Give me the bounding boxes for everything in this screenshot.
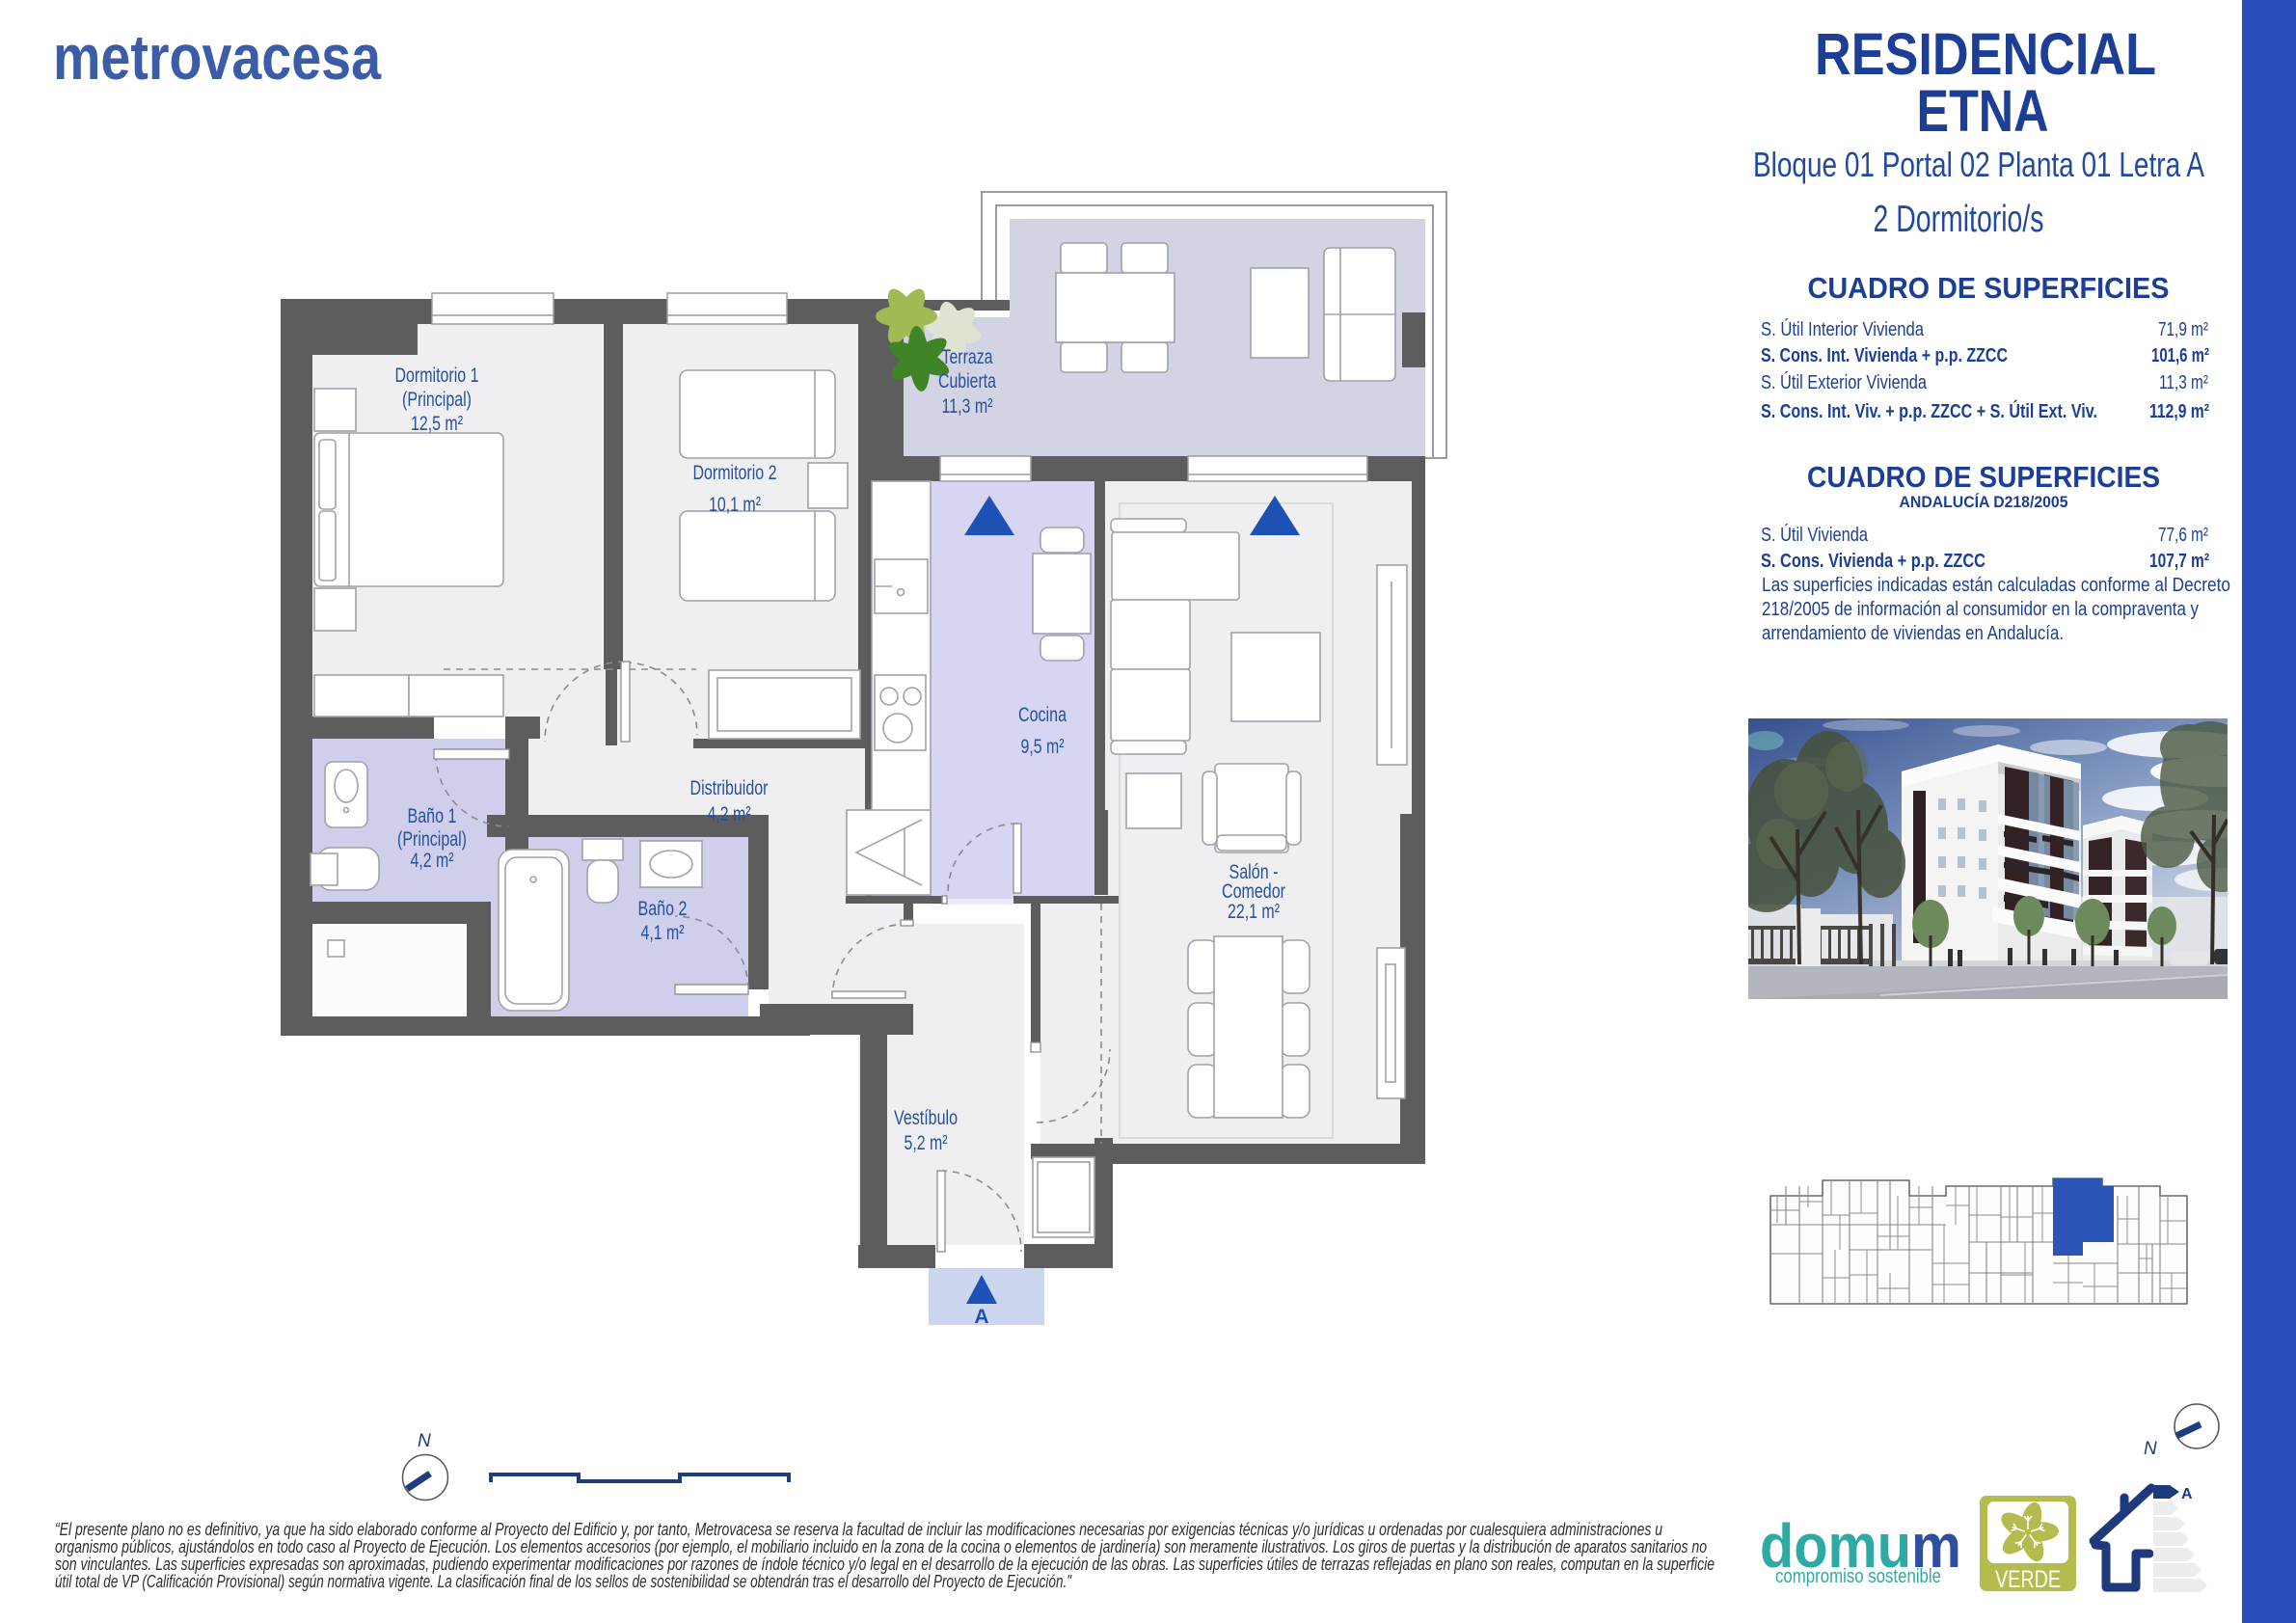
svg-text:son vinculantes. Las superfici: son vinculantes. Las superficies expresa… [55, 1555, 1715, 1574]
svg-text:(Principal): (Principal) [402, 389, 472, 411]
svg-text:N: N [2144, 1439, 2157, 1459]
svg-text:101,6 m²: 101,6 m² [2151, 344, 2209, 366]
svg-text:Comedor: Comedor [1222, 880, 1285, 903]
svg-text:4,2 m²: 4,2 m² [411, 850, 454, 872]
svg-text:CUADRO DE SUPERFICIES: CUADRO DE SUPERFICIES [1807, 460, 2160, 494]
svg-text:Dormitorio 2: Dormitorio 2 [693, 462, 777, 484]
svg-text:S. Cons. Int. Vivienda + p.p.: S. Cons. Int. Vivienda + p.p. ZZCC [1761, 344, 2008, 366]
svg-text:Baño 1: Baño 1 [408, 805, 457, 827]
svg-text:Bloque 01 Portal 02 Planta 01: Bloque 01 Portal 02 Planta 01 Letra A [1753, 145, 2204, 184]
svg-text:A: A [2181, 1486, 2193, 1502]
svg-text:(Principal): (Principal) [397, 828, 467, 851]
svg-text:arrendamiento de viviendas en: arrendamiento de viviendas en Andalucía. [1762, 623, 2064, 644]
svg-text:11,3 m²: 11,3 m² [942, 395, 993, 418]
svg-text:107,7 m²: 107,7 m² [2149, 550, 2209, 572]
svg-text:22,1 m²: 22,1 m² [1228, 901, 1280, 923]
svg-text:10,1 m²: 10,1 m² [709, 494, 761, 516]
svg-text:77,6 m²: 77,6 m² [2158, 524, 2208, 546]
svg-text:2 Dormitorio/s: 2 Dormitorio/s [1874, 199, 2044, 240]
svg-text:S. Cons. Int. Viv. + p.p. ZZCC: S. Cons. Int. Viv. + p.p. ZZCC + S. Útil… [1761, 399, 2097, 422]
svg-text:Cubierta: Cubierta [938, 370, 996, 392]
svg-text:112,9 m²: 112,9 m² [2149, 400, 2209, 422]
svg-text:Cocina: Cocina [1018, 704, 1067, 726]
svg-text:9,5 m²: 9,5 m² [1021, 736, 1065, 758]
svg-text:12,5 m²: 12,5 m² [411, 413, 463, 435]
svg-text:Terraza: Terraza [942, 346, 993, 368]
svg-text:Las superficies indicadas está: Las superficies indicadas están calculad… [1762, 575, 2230, 596]
svg-text:Dormitorio 1: Dormitorio 1 [395, 365, 479, 387]
svg-text:A: A [974, 1306, 988, 1328]
svg-text:CUADRO DE SUPERFICIES: CUADRO DE SUPERFICIES [1808, 271, 2170, 305]
svg-text:5,2 m²: 5,2 m² [905, 1132, 948, 1154]
svg-text:RESIDENCIAL: RESIDENCIAL [1815, 21, 2156, 87]
svg-text:Baño 2: Baño 2 [638, 898, 688, 920]
svg-text:ANDALUCÍA D218/2005: ANDALUCÍA D218/2005 [1900, 493, 2068, 511]
svg-text:4,2 m²: 4,2 m² [708, 803, 751, 825]
svg-text:“El presente plano no es defin: “El presente plano no es definitivo, ya … [55, 1520, 1662, 1539]
svg-text:VERDE: VERDE [1995, 1566, 2061, 1593]
svg-text:Vestíbulo: Vestíbulo [894, 1107, 958, 1129]
svg-text:11,3 m²: 11,3 m² [2159, 371, 2208, 393]
svg-text:útil total de VP (Calificación: útil total de VP (Calificación Provision… [55, 1572, 1072, 1591]
svg-text:S. Útil Exterior Vivienda: S. Útil Exterior Vivienda [1761, 371, 1927, 393]
svg-text:Distribuidor: Distribuidor [690, 777, 769, 799]
svg-text:218/2005 de información al con: 218/2005 de información al consumidor en… [1762, 599, 2199, 620]
svg-text:N: N [418, 1431, 431, 1451]
svg-text:ETNA: ETNA [1917, 78, 2049, 144]
svg-text:4,1 m²: 4,1 m² [641, 922, 685, 944]
svg-text:compromiso sostenible: compromiso sostenible [1775, 1566, 1941, 1587]
svg-text:S. Cons. Vivienda + p.p. ZZCC: S. Cons. Vivienda + p.p. ZZCC [1761, 550, 1985, 572]
svg-text:71,9 m²: 71,9 m² [2158, 318, 2208, 340]
svg-text:organismo públicos, ajustándol: organismo públicos, ajustándolos en todo… [55, 1537, 1707, 1556]
svg-text:S. Útil Vivienda: S. Útil Vivienda [1761, 524, 1868, 546]
svg-text:metrovacesa: metrovacesa [53, 21, 382, 93]
svg-text:S. Útil Interior Vivienda: S. Útil Interior Vivienda [1761, 318, 1924, 340]
